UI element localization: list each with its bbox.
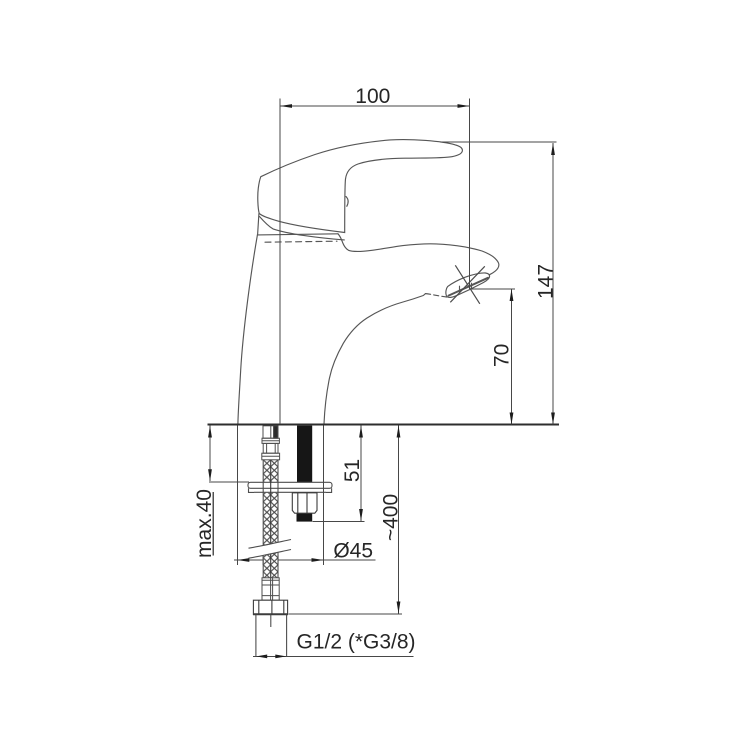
svg-text:51: 51 xyxy=(341,459,364,482)
svg-text:G1/2 (*G3/8): G1/2 (*G3/8) xyxy=(297,631,416,654)
svg-text:70: 70 xyxy=(491,344,514,367)
svg-text:100: 100 xyxy=(355,85,390,108)
svg-text:147: 147 xyxy=(535,264,558,299)
svg-text:~400: ~400 xyxy=(380,494,403,541)
svg-text:max.40: max.40 xyxy=(193,489,216,558)
svg-text:Ø45: Ø45 xyxy=(333,540,373,563)
